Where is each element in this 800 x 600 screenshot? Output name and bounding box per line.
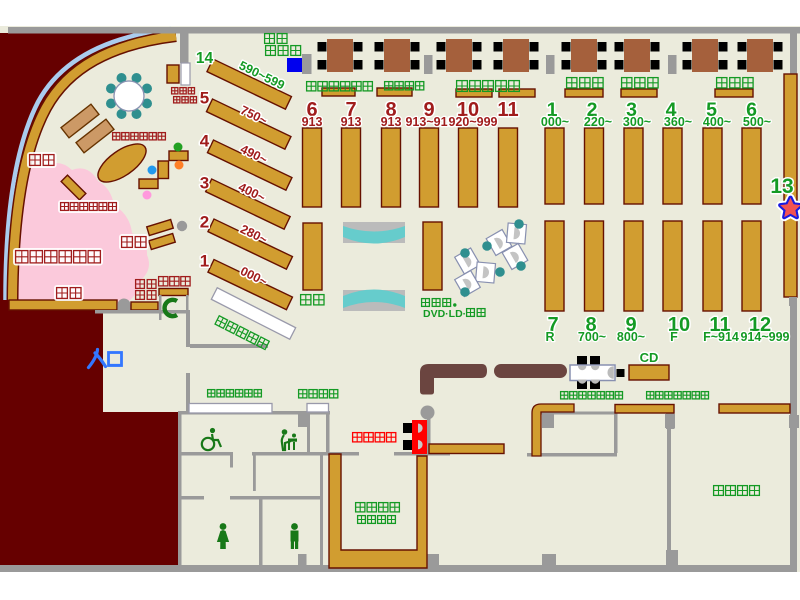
svg-text:5: 5 [200, 89, 209, 108]
svg-text:3: 3 [200, 174, 209, 193]
svg-text:CD: CD [640, 350, 659, 365]
svg-text:913: 913 [381, 115, 402, 129]
svg-text:913: 913 [341, 115, 362, 129]
svg-text:700~: 700~ [578, 330, 606, 344]
svg-text:000~: 000~ [541, 115, 569, 129]
svg-text:F~914: F~914 [703, 330, 739, 344]
svg-text:360~: 360~ [664, 115, 692, 129]
svg-text:4: 4 [200, 132, 210, 151]
svg-text:913~919: 913~919 [405, 115, 454, 129]
svg-text:300~: 300~ [623, 115, 651, 129]
svg-text:400~: 400~ [703, 115, 731, 129]
svg-text:2: 2 [200, 213, 209, 232]
svg-text:914~999: 914~999 [740, 330, 789, 344]
svg-text:913: 913 [302, 115, 323, 129]
svg-text:DVD·LD·: DVD·LD· [423, 308, 466, 320]
svg-text:14: 14 [196, 50, 214, 67]
svg-text:800~: 800~ [617, 330, 645, 344]
svg-text:1: 1 [200, 252, 209, 271]
svg-text:500~: 500~ [743, 115, 771, 129]
svg-text:220~: 220~ [584, 115, 612, 129]
svg-text:920~999: 920~999 [448, 115, 497, 129]
svg-text:R: R [545, 330, 554, 344]
svg-text:11: 11 [497, 99, 518, 121]
svg-text:F: F [670, 330, 678, 344]
svg-text:13: 13 [770, 175, 793, 198]
